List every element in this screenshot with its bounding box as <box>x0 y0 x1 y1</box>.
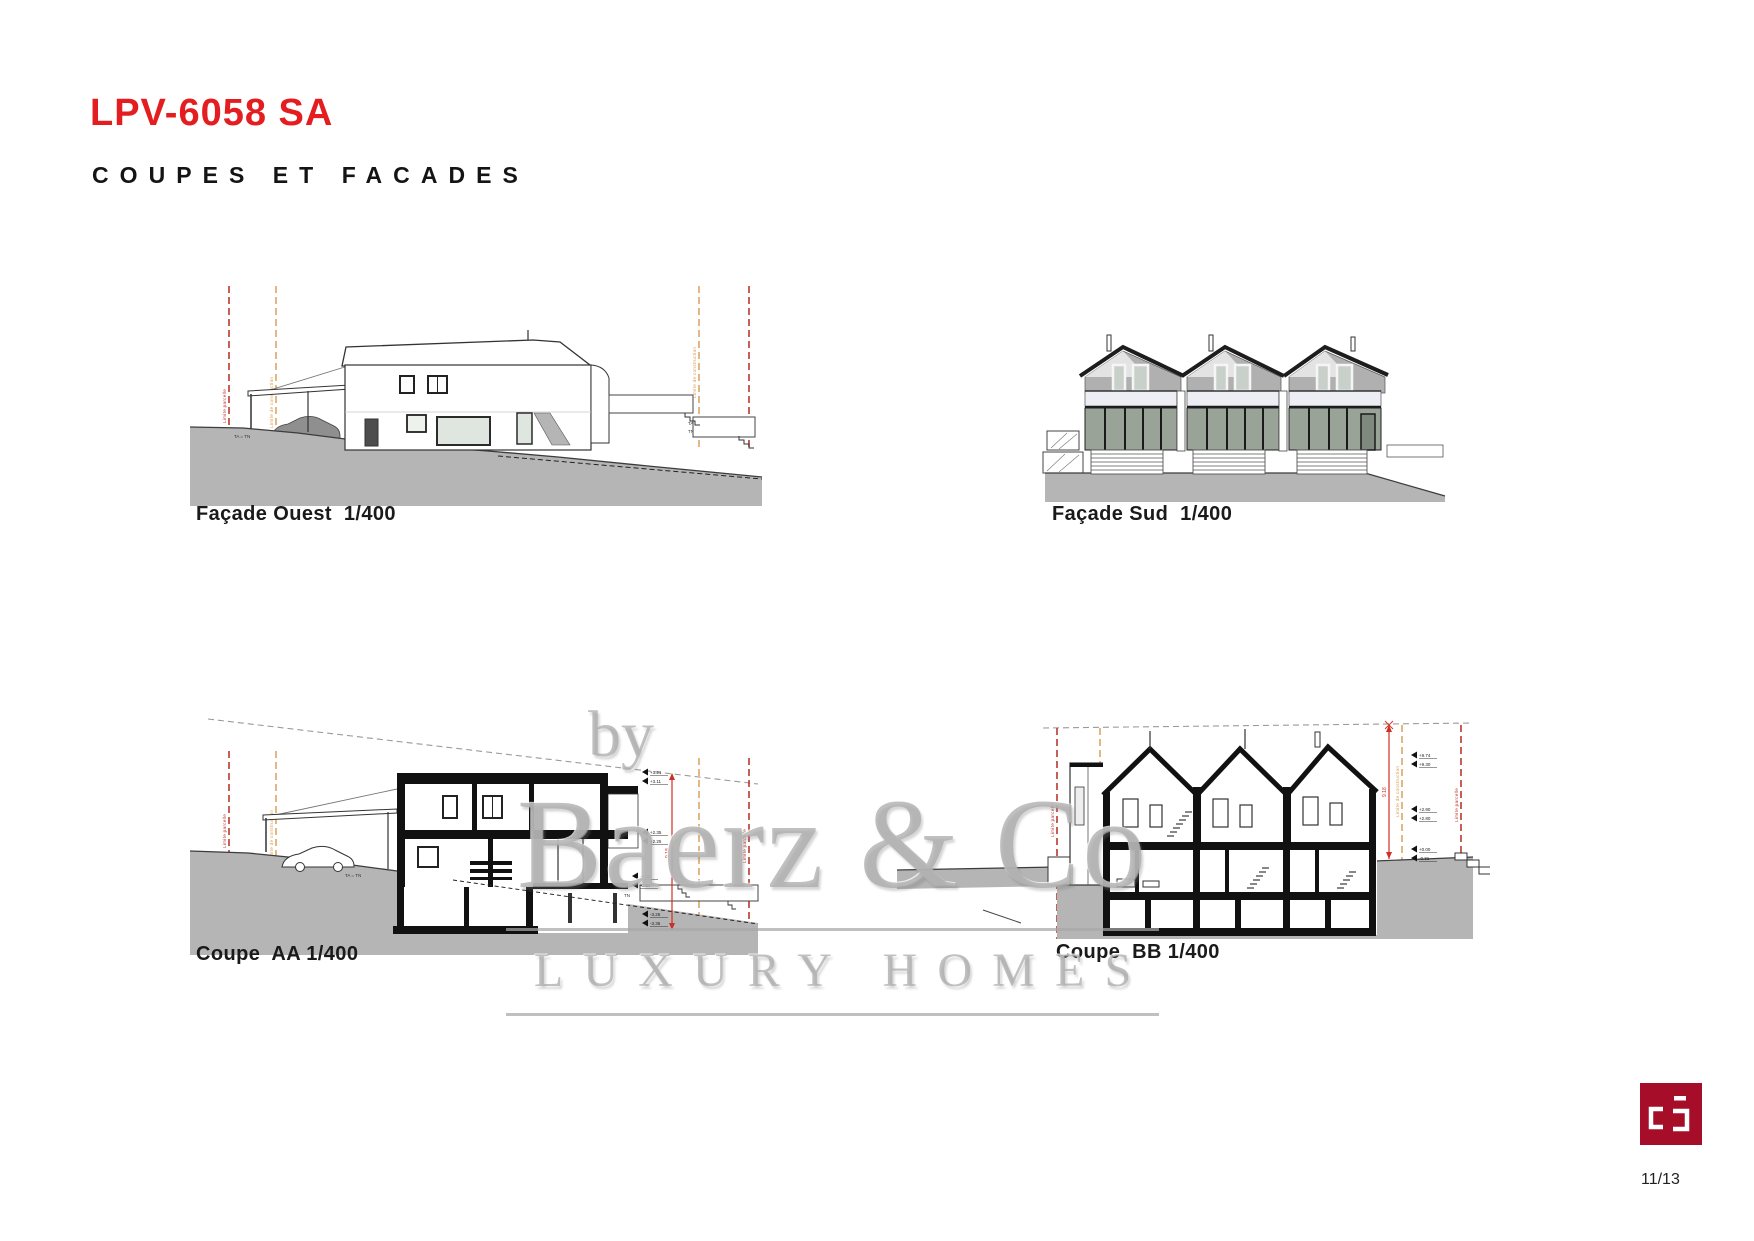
svg-text:Limite de construction: Limite de construction <box>692 347 697 398</box>
svg-text:Limite parcelle: Limite parcelle <box>742 829 747 863</box>
height-dimension: 9.18 <box>665 773 675 930</box>
svg-text:Limite parcelle: Limite parcelle <box>1050 803 1055 837</box>
svg-text:Limite parcelle: Limite parcelle <box>222 389 227 423</box>
svg-text:9.18: 9.18 <box>665 848 671 858</box>
svg-text:TN: TN <box>624 893 630 898</box>
svg-text:+2.80: +2.80 <box>1419 816 1431 821</box>
house-unit <box>1284 337 1388 474</box>
svg-text:9.18: 9.18 <box>1382 787 1388 797</box>
facade-ouest-label: Façade Ouest 1/400 <box>196 503 396 526</box>
svg-text:+0.00: +0.00 <box>1419 847 1431 852</box>
baerz-logo-icon <box>1640 1083 1702 1145</box>
window <box>407 415 426 432</box>
svg-text:TA = TN: TA = TN <box>345 873 361 878</box>
coupe-bb-label: Coupe BB 1/400 <box>1056 941 1220 964</box>
terraces <box>609 395 755 448</box>
window <box>1330 803 1342 825</box>
retaining-walls <box>1043 431 1083 473</box>
height-dimension: 9.18 <box>1382 721 1393 859</box>
elevation-markers: +9.74 +9.30 +2.90 +2.80 +0.00 -0.31 <box>1411 752 1437 862</box>
svg-text:+9.30: +9.30 <box>1419 762 1431 767</box>
svg-text:-3.36: -3.36 <box>650 921 661 926</box>
svg-text:TA: TA <box>624 879 629 884</box>
window <box>1240 805 1252 827</box>
facade-ouest-drawing: Limite parcelle Limite de construction L… <box>188 278 763 513</box>
terrain <box>1045 473 1445 502</box>
watermark-divider <box>506 1013 1159 1016</box>
window <box>418 847 438 867</box>
house-unit <box>1182 335 1287 474</box>
facade-sud-drawing <box>1035 295 1480 510</box>
row-houses <box>1080 335 1443 474</box>
window <box>400 376 414 393</box>
svg-text:TA = TN: TA = TN <box>234 434 250 439</box>
svg-text:+9.74: +9.74 <box>1419 753 1431 758</box>
svg-text:+3.11: +3.11 <box>650 779 662 784</box>
house-section: TA TN <box>393 773 638 934</box>
svg-text:+2.25: +2.25 <box>650 839 662 844</box>
window <box>1303 797 1318 825</box>
houses-section <box>1103 729 1377 936</box>
window <box>1123 799 1138 827</box>
coupe-aa-drawing: Limite parcelle Limite de construction L… <box>188 633 768 968</box>
svg-text:Limite parcelle: Limite parcelle <box>1454 788 1459 822</box>
svg-text:-0.31: -0.31 <box>1419 856 1430 861</box>
svg-text:-0.24: -0.24 <box>640 874 651 879</box>
svg-text:+3.21: +3.21 <box>650 770 662 775</box>
entry-door <box>365 419 378 446</box>
glass-door <box>517 413 532 444</box>
svg-text:+2.90: +2.90 <box>1419 807 1431 812</box>
svg-text:+2.35: +2.35 <box>650 830 662 835</box>
svg-text:Limite de construction: Limite de construction <box>269 377 274 428</box>
coupe-aa-label: Coupe AA 1/400 <box>196 943 358 966</box>
window <box>443 796 457 818</box>
page-title: LPV-6058 SA <box>90 92 333 135</box>
svg-text:-3.26: -3.26 <box>650 912 661 917</box>
altitude-limit-line <box>1043 723 1473 728</box>
facade-sud-label: Façade Sud 1/400 <box>1052 503 1232 526</box>
svg-text:Limite parcelle: Limite parcelle <box>222 814 227 848</box>
tower-annex <box>1048 763 1105 885</box>
coupe-bb-drawing: Limite parcelle Limite de construction L… <box>895 637 1490 947</box>
document-page: LPV-6058 SA COUPES ET FACADES Limite par… <box>0 0 1754 1241</box>
side-terrace <box>1387 445 1443 457</box>
svg-text:-0.34: -0.34 <box>640 883 651 888</box>
window <box>1213 799 1228 827</box>
svg-text:Limite de construction: Limite de construction <box>1395 766 1400 817</box>
page-number: 11/13 <box>1641 1171 1680 1189</box>
house-unit <box>1080 335 1185 474</box>
house-elevation <box>342 330 609 450</box>
picture-window <box>437 417 490 445</box>
page-subtitle: COUPES ET FACADES <box>92 162 529 189</box>
window <box>1150 805 1162 827</box>
